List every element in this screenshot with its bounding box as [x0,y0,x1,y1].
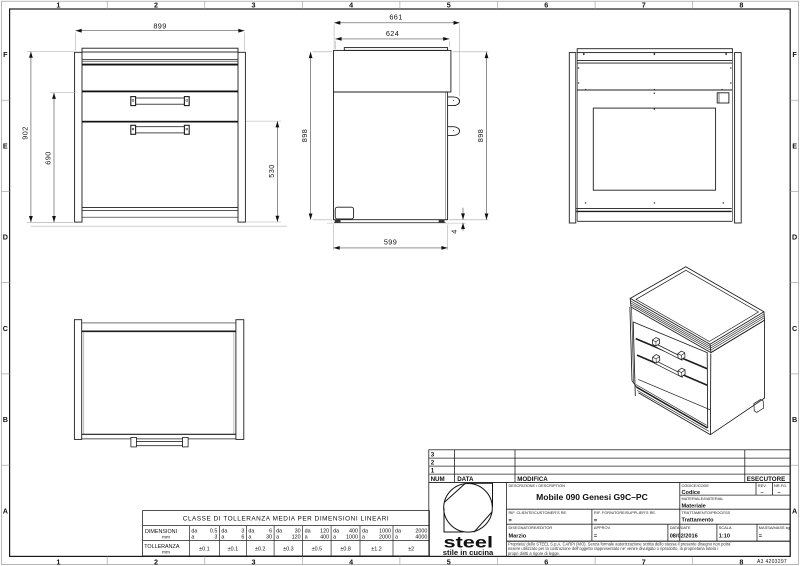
svg-text:CODICE/CODE: CODICE/CODE [682,483,710,488]
svg-text:3: 3 [252,557,256,566]
svg-text:a: a [221,534,224,540]
svg-text:NR.FG.: NR.FG. [774,483,787,488]
svg-text:4: 4 [349,1,353,10]
svg-text:899: 899 [153,21,166,30]
svg-text:902: 902 [21,126,30,139]
svg-text:Marzio: Marzio [509,534,527,540]
svg-text:CLASSE DI TOLLERANZA MEDIA PER: CLASSE DI TOLLERANZA MEDIA PER DIMENSION… [183,516,389,523]
svg-text:propri diritti a rigore di leg: propri diritti a rigore di legge. [508,551,560,556]
svg-text:3: 3 [431,452,435,459]
svg-text:6: 6 [544,557,548,566]
svg-text:SCALA: SCALA [719,525,732,530]
svg-text:A: A [792,506,797,515]
svg-text:±0.5: ±0.5 [312,547,322,553]
svg-text:400: 400 [320,534,329,540]
svg-text:mm: mm [162,551,170,556]
svg-text:–: – [778,490,781,496]
svg-text:120: 120 [292,534,301,540]
svg-text:1: 1 [56,1,60,10]
svg-text:DIMENSIONI: DIMENSIONI [145,529,177,535]
svg-text:690: 690 [44,151,53,164]
svg-text:A3 4203297: A3 4203297 [757,559,787,565]
svg-text:TOLLERANZA: TOLLERANZA [144,544,180,550]
svg-text:RIF. CLIENTE/CUSTOMER’S RE.: RIF. CLIENTE/CUSTOMER’S RE. [509,510,568,515]
svg-text:7: 7 [642,557,646,566]
svg-text:2: 2 [154,557,158,566]
svg-text:B: B [3,415,8,424]
svg-text:C: C [3,324,8,333]
svg-text:2: 2 [154,1,158,10]
svg-text:C: C [792,324,797,333]
svg-text:898: 898 [300,129,309,142]
svg-text:TRATTAMENTO/PROCESS: TRATTAMENTO/PROCESS [682,510,731,515]
svg-text:D: D [3,233,8,242]
svg-text:A: A [3,506,8,515]
svg-text:±1.2: ±1.2 [371,547,381,553]
svg-text:MASSA/MASS kg: MASSA/MASS kg [759,525,790,530]
svg-text:3: 3 [252,1,256,10]
svg-text:661: 661 [389,13,402,22]
svg-text:ESECUTORE: ESECUTORE [747,476,785,483]
svg-text:a: a [191,534,194,540]
svg-text:4000: 4000 [415,534,427,540]
svg-text:08/02/2016: 08/02/2016 [670,534,698,540]
svg-text:±0.1: ±0.1 [199,547,209,553]
svg-text:7: 7 [642,1,646,10]
svg-text:APPROV.: APPROV. [594,525,611,530]
svg-text:1: 1 [431,468,435,475]
svg-text:1:10: 1:10 [719,534,730,540]
svg-text:a: a [395,534,398,540]
svg-text:±0.8: ±0.8 [340,547,350,553]
svg-text:4: 4 [349,557,353,566]
svg-text:8: 8 [739,1,743,10]
svg-text:530: 530 [267,164,276,177]
svg-text:mm: mm [162,536,170,541]
svg-text:±0.3: ±0.3 [283,547,293,553]
svg-text:a: a [333,534,336,540]
svg-text:F: F [792,50,797,59]
svg-text:a: a [305,534,308,540]
svg-text:DATA: DATA [457,476,474,483]
svg-text:599: 599 [384,238,397,247]
svg-text:Trattamento: Trattamento [682,518,715,524]
svg-text:4: 4 [450,229,459,233]
svg-text:B: B [792,415,797,424]
svg-text:3: 3 [214,534,217,540]
svg-text:5: 5 [447,557,451,566]
svg-text:624: 624 [386,29,399,38]
svg-text:6: 6 [241,534,244,540]
svg-text:1: 1 [56,557,60,566]
svg-text:–: – [761,490,764,496]
svg-text:DISEGNATORE/EDITOR: DISEGNATORE/EDITOR [509,525,553,530]
svg-text:E: E [3,141,8,150]
svg-text:NUM: NUM [431,476,445,483]
svg-text:Materiale: Materiale [682,504,706,510]
svg-text:REV.: REV. [758,483,767,488]
svg-text:DESCRIZIONE / DESCRIPTION: DESCRIZIONE / DESCRIPTION [509,483,566,488]
svg-text:Mobile 090 Genesi G9C–PC: Mobile 090 Genesi G9C–PC [536,492,648,502]
svg-text:MATERIALE/MATERIAL: MATERIALE/MATERIAL [682,496,725,501]
svg-text:stile in cucina: stile in cucina [443,550,494,557]
svg-text:a: a [248,534,251,540]
svg-text:30: 30 [266,534,272,540]
svg-text:±0.2: ±0.2 [255,547,265,553]
svg-text:±0.1: ±0.1 [228,547,238,553]
svg-text:8: 8 [739,557,743,566]
svg-text:RIF. FORNITORE/SUPPLIER’S RE.: RIF. FORNITORE/SUPPLIER’S RE. [594,510,656,515]
svg-text:a: a [276,534,279,540]
svg-text:6: 6 [544,1,548,10]
svg-text:898: 898 [476,129,485,142]
svg-text:D: D [792,233,797,242]
svg-text:2: 2 [431,460,435,467]
svg-text:±2: ±2 [408,547,414,553]
svg-text:2000: 2000 [379,534,391,540]
svg-text:a: a [362,534,365,540]
svg-text:1000: 1000 [346,534,358,540]
svg-text:E: E [792,141,797,150]
svg-text:MODIFICA: MODIFICA [517,476,548,483]
svg-text:DATA/DATE: DATA/DATE [670,525,691,530]
svg-text:5: 5 [447,1,451,10]
svg-text:F: F [3,50,8,59]
svg-text:Codice: Codice [682,490,701,496]
